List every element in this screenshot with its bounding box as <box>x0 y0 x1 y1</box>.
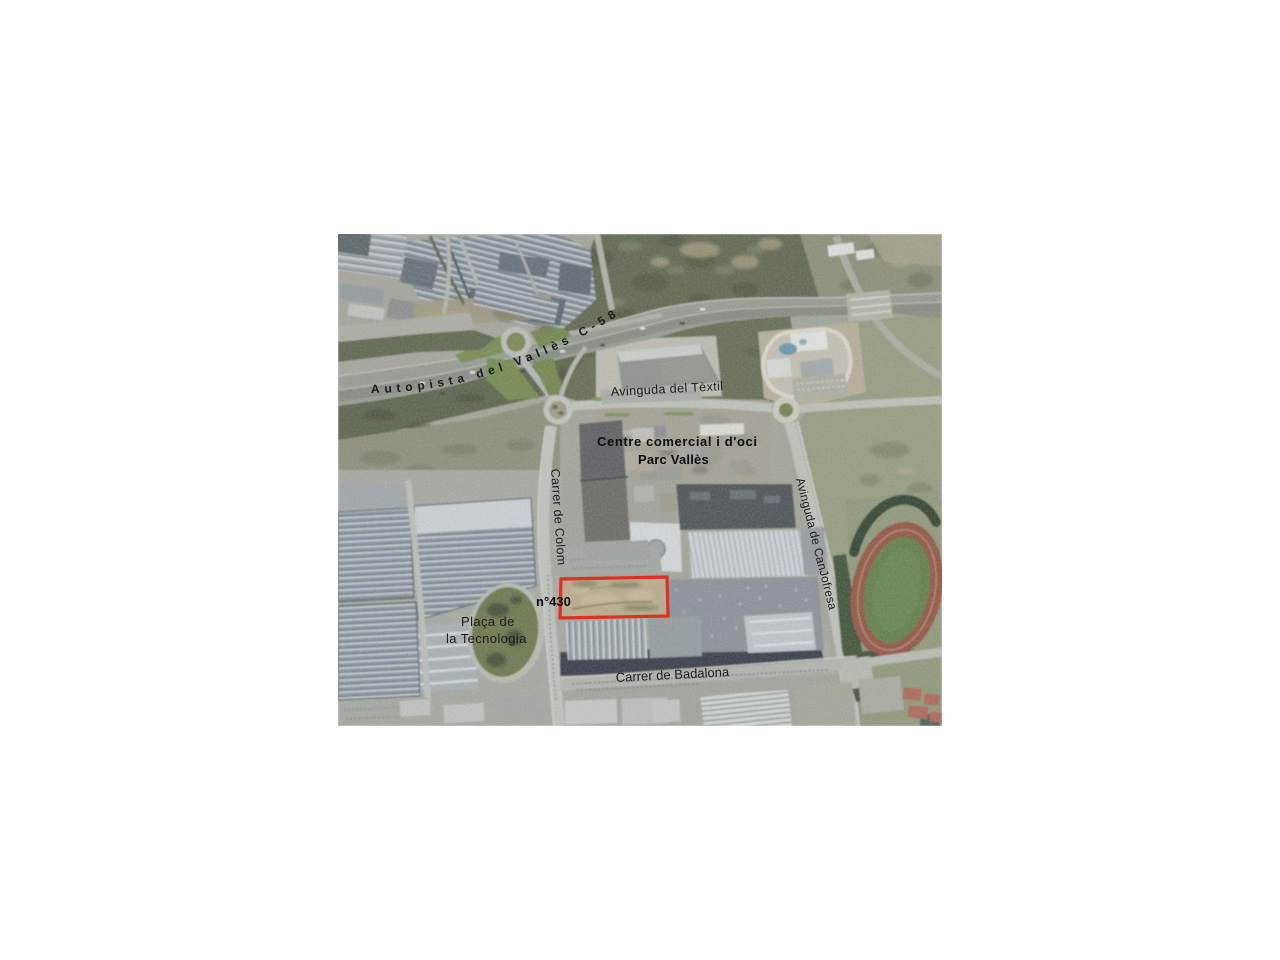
svg-text:la Tecnologia: la Tecnologia <box>446 631 527 646</box>
svg-text:Centre comercial i d'oci: Centre comercial i d'oci <box>597 434 758 449</box>
svg-text:n°430: n°430 <box>536 594 571 609</box>
svg-text:Plaça de: Plaça de <box>461 614 515 629</box>
svg-text:Parc Vallès: Parc Vallès <box>638 452 709 467</box>
